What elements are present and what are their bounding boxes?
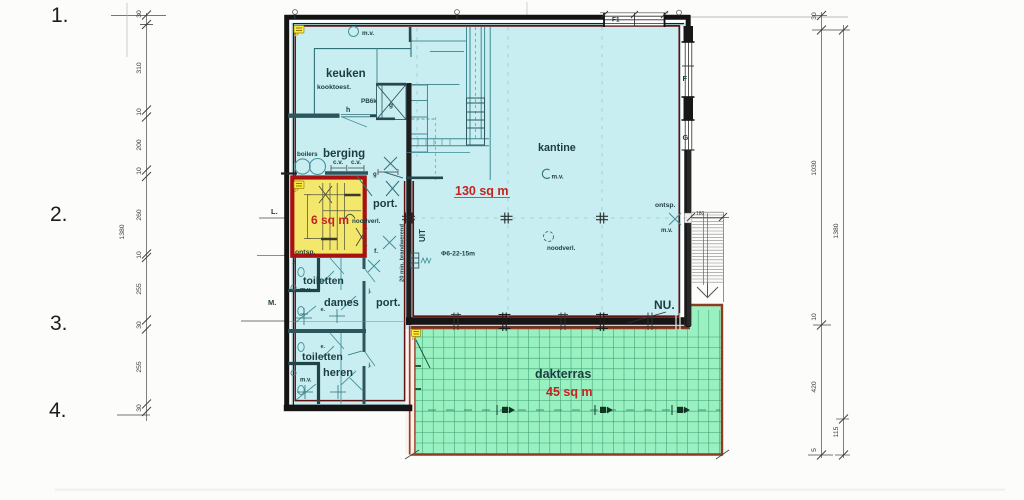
svg-text:ontsp.: ontsp.	[295, 249, 315, 256]
svg-text:noodverl.: noodverl.	[352, 218, 381, 225]
svg-text:ontsp.: ontsp.	[655, 202, 675, 209]
svg-text:10: 10	[136, 167, 143, 175]
svg-text:kooktoest.: kooktoest.	[317, 84, 351, 91]
svg-text:10: 10	[136, 251, 143, 259]
svg-text:1030: 1030	[811, 160, 818, 175]
svg-text:30: 30	[136, 404, 143, 412]
svg-text:255: 255	[136, 283, 143, 295]
svg-text:M.: M.	[268, 298, 276, 307]
svg-text:kantine: kantine	[538, 142, 576, 154]
svg-text:115: 115	[833, 426, 840, 437]
svg-text:G: G	[683, 133, 689, 142]
svg-text:255: 255	[136, 361, 143, 373]
svg-text:3.: 3.	[50, 312, 68, 335]
svg-text:L.: L.	[271, 207, 278, 216]
svg-text:NU.: NU.	[654, 298, 675, 312]
svg-text:UIT: UIT	[418, 229, 427, 242]
svg-text:2.: 2.	[50, 203, 68, 226]
svg-text:F1: F1	[612, 17, 620, 24]
svg-text:1380: 1380	[833, 223, 840, 238]
svg-text:30: 30	[136, 321, 143, 329]
svg-text:dames: dames	[324, 297, 359, 309]
svg-text:port.: port.	[376, 297, 400, 309]
svg-text:F: F	[683, 74, 688, 83]
svg-text:1.: 1.	[51, 4, 69, 27]
svg-text:m.v.: m.v.	[300, 288, 312, 294]
svg-text:m.v.: m.v.	[552, 174, 564, 181]
svg-text:PB6k: PB6k	[361, 98, 377, 105]
svg-text:f.: f.	[374, 248, 378, 255]
svg-text:1380: 1380	[119, 224, 126, 239]
svg-text:toiletten: toiletten	[303, 275, 344, 287]
svg-text:dakterras: dakterras	[535, 367, 591, 381]
svg-text:260: 260	[136, 209, 143, 221]
svg-text:Φ6-22-15m: Φ6-22-15m	[441, 251, 475, 258]
svg-text:180: 180	[696, 211, 705, 217]
svg-text:30: 30	[136, 10, 143, 18]
svg-text:45 sq m: 45 sq m	[546, 385, 593, 399]
svg-text:310: 310	[136, 62, 143, 74]
svg-text:toiletten: toiletten	[302, 351, 343, 363]
svg-text:noodverl.: noodverl.	[547, 245, 576, 252]
svg-text:30: 30	[811, 12, 818, 20]
svg-text:6 sq m: 6 sq m	[311, 213, 349, 227]
svg-text:e.: e.	[321, 307, 326, 313]
svg-text:200: 200	[136, 139, 143, 151]
svg-text:j.: j.	[368, 289, 373, 295]
svg-text:j.: j.	[368, 363, 373, 369]
svg-text:g: g	[389, 102, 393, 109]
svg-text:c.v.: c.v.	[333, 159, 343, 166]
svg-text:10: 10	[136, 108, 143, 116]
svg-text:m.v.: m.v.	[362, 30, 374, 37]
svg-text:heren: heren	[323, 367, 353, 379]
svg-text:c.v.: c.v.	[351, 159, 361, 166]
svg-text:20 min. brandwerend: 20 min. brandwerend	[400, 224, 406, 282]
svg-text:130 sq m: 130 sq m	[455, 184, 509, 198]
svg-text:port.: port.	[373, 198, 397, 210]
svg-text:g: g	[373, 172, 377, 178]
svg-text:boilers: boilers	[297, 151, 318, 158]
svg-text:m.v.: m.v.	[661, 228, 673, 234]
svg-text:m.v.: m.v.	[300, 378, 312, 384]
svg-text:10: 10	[811, 313, 818, 321]
svg-text:4.: 4.	[49, 399, 67, 422]
svg-text:h: h	[346, 107, 350, 114]
svg-text:keuken: keuken	[326, 68, 366, 80]
svg-text:e.: e.	[321, 344, 326, 350]
svg-text:5: 5	[811, 448, 818, 452]
svg-text:420: 420	[811, 381, 818, 393]
